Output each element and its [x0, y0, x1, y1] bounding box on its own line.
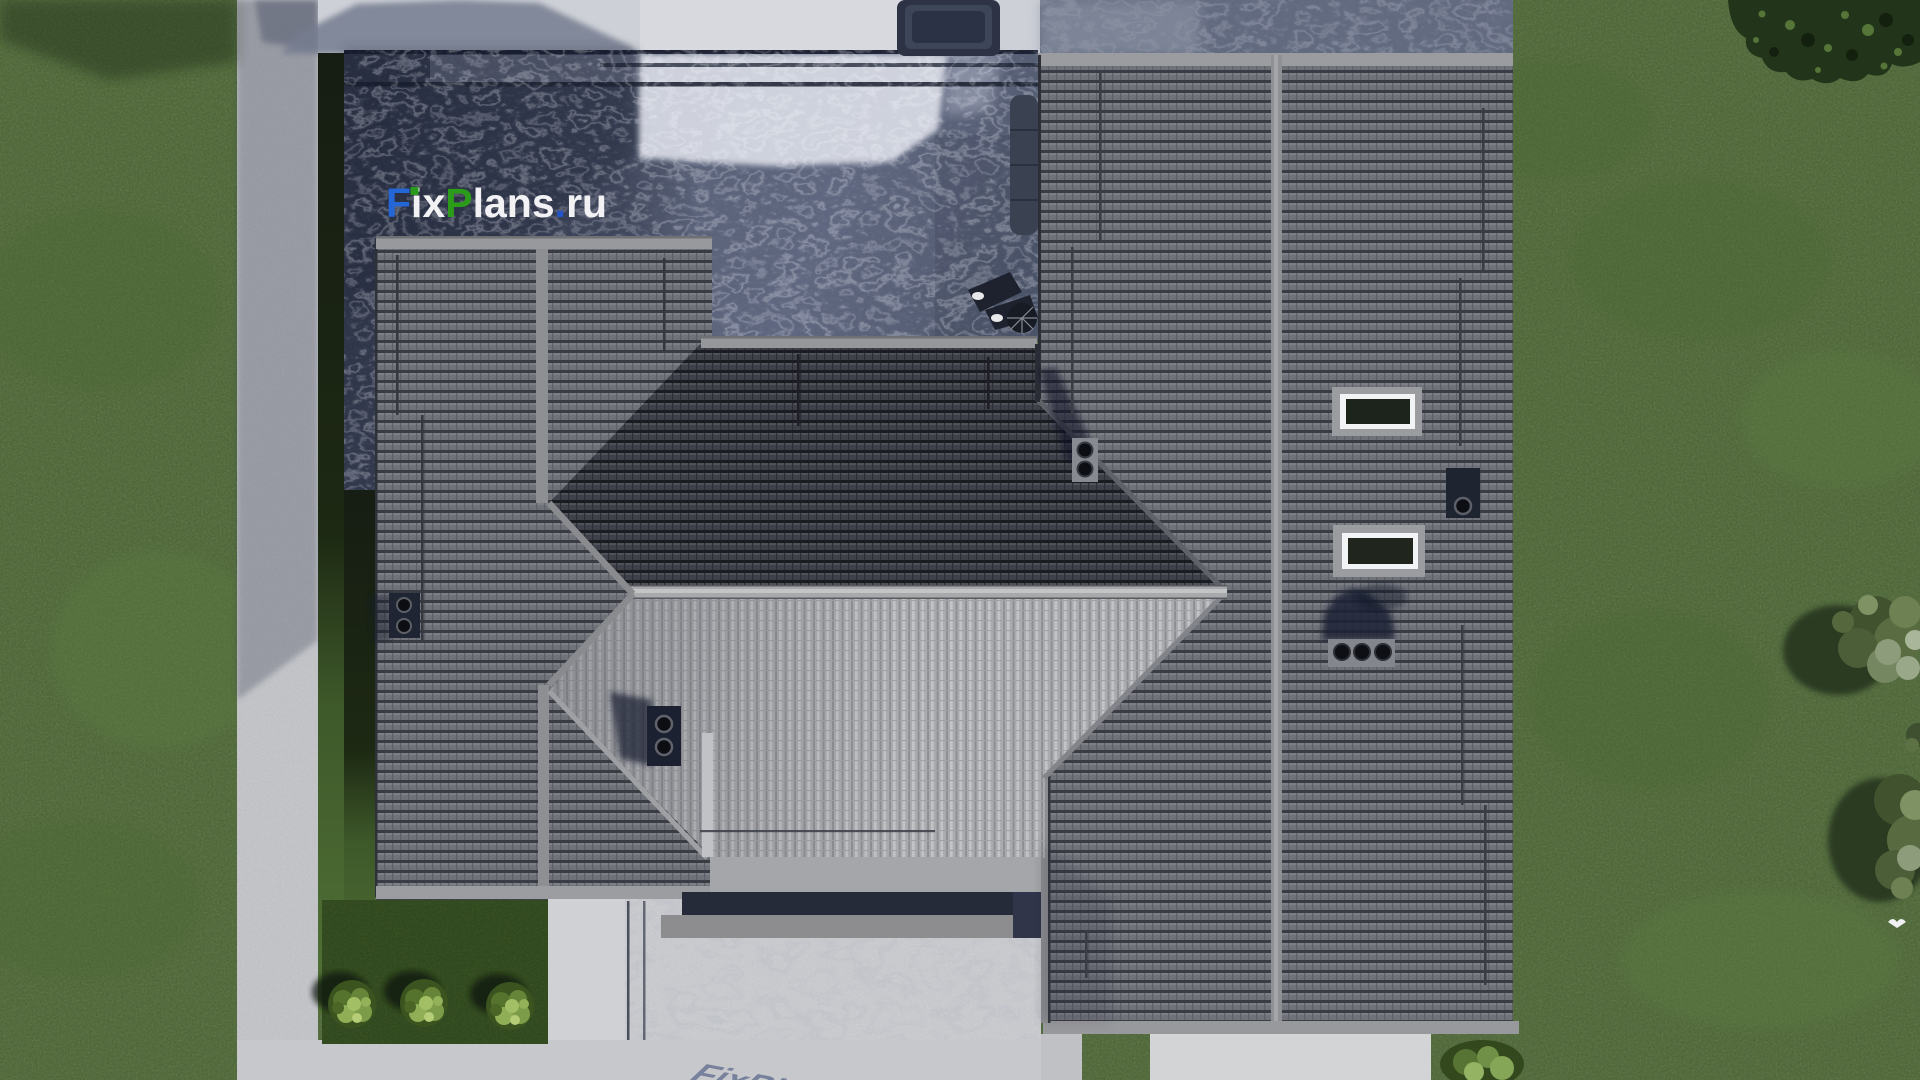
- svg-text:FixPlans.ru: FixPlans.ru: [386, 180, 607, 226]
